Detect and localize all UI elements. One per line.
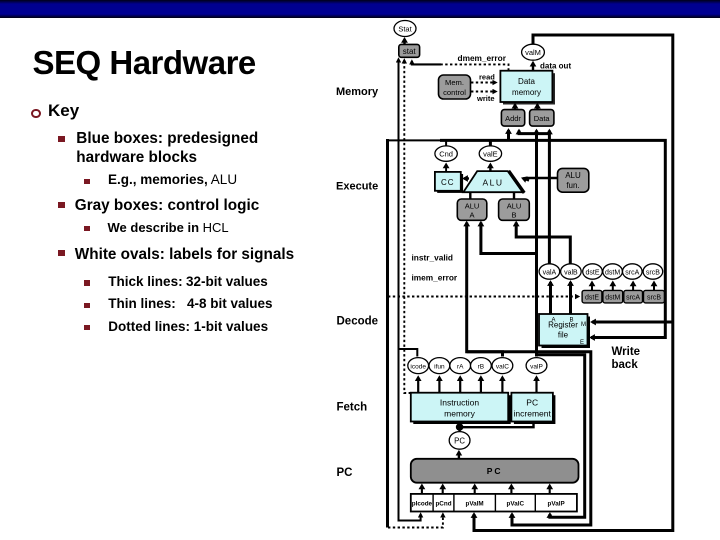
svg-text:valM: valM bbox=[525, 48, 541, 57]
svg-text:Instruction: Instruction bbox=[440, 398, 479, 408]
svg-text:dstM: dstM bbox=[605, 295, 620, 302]
svg-text:Fetch: Fetch bbox=[337, 402, 368, 414]
svg-text:rB: rB bbox=[478, 363, 485, 370]
svg-text:srcB: srcB bbox=[646, 269, 660, 276]
svg-text:valC: valC bbox=[496, 363, 509, 370]
svg-text:data out: data out bbox=[540, 62, 571, 71]
svg-text:Memory: Memory bbox=[336, 86, 379, 98]
svg-text:PC: PC bbox=[337, 467, 353, 479]
svg-text:Execute: Execute bbox=[336, 181, 378, 193]
svg-text:B: B bbox=[570, 318, 574, 324]
svg-text:Cnd: Cnd bbox=[439, 149, 453, 158]
svg-text:Addr: Addr bbox=[505, 114, 521, 123]
svg-text:pIcode: pIcode bbox=[412, 500, 433, 507]
svg-text:dstE: dstE bbox=[585, 269, 599, 276]
svg-text:E: E bbox=[580, 340, 584, 346]
svg-text:dmem_error: dmem_error bbox=[458, 53, 507, 63]
svg-text:fun.: fun. bbox=[566, 181, 579, 190]
svg-text:file: file bbox=[558, 331, 569, 340]
svg-text:write: write bbox=[476, 94, 495, 103]
svg-text:A: A bbox=[552, 318, 556, 324]
svg-text:memory: memory bbox=[512, 88, 541, 97]
svg-text:ifun: ifun bbox=[434, 363, 445, 370]
svg-text:valB: valB bbox=[564, 269, 578, 276]
svg-text:A: A bbox=[469, 210, 474, 219]
svg-text:valE: valE bbox=[483, 149, 498, 158]
svg-text:pValM: pValM bbox=[465, 500, 483, 507]
svg-text:pCnd: pCnd bbox=[435, 500, 451, 507]
svg-text:instr_valid: instr_valid bbox=[412, 253, 454, 263]
svg-text:CC: CC bbox=[441, 178, 455, 187]
svg-text:rA: rA bbox=[457, 363, 464, 370]
svg-text:ALU: ALU bbox=[565, 171, 581, 180]
svg-text:ALU: ALU bbox=[482, 177, 503, 187]
svg-text:Write: Write bbox=[612, 346, 641, 358]
svg-text:read: read bbox=[479, 73, 495, 82]
svg-text:stat: stat bbox=[403, 47, 417, 56]
svg-text:Mem.: Mem. bbox=[445, 78, 464, 87]
svg-text:ALU: ALU bbox=[507, 201, 522, 210]
svg-text:PC: PC bbox=[454, 436, 465, 445]
svg-text:ALU: ALU bbox=[465, 201, 480, 210]
svg-text:control: control bbox=[443, 88, 466, 97]
svg-text:increment: increment bbox=[514, 409, 552, 419]
svg-text:srcB: srcB bbox=[647, 295, 661, 302]
svg-text:B: B bbox=[511, 210, 516, 219]
svg-text:Data: Data bbox=[534, 114, 551, 123]
svg-text:PC: PC bbox=[526, 398, 538, 408]
svg-text:back: back bbox=[612, 359, 639, 371]
svg-text:icode: icode bbox=[410, 363, 426, 370]
svg-text:memory: memory bbox=[444, 409, 475, 419]
svg-text:imem_error: imem_error bbox=[412, 273, 458, 283]
svg-text:Decode: Decode bbox=[337, 316, 379, 328]
svg-text:Stat: Stat bbox=[398, 24, 412, 33]
svg-text:valA: valA bbox=[543, 269, 557, 276]
svg-text:srcA: srcA bbox=[626, 295, 640, 302]
svg-text:dstE: dstE bbox=[585, 295, 599, 302]
svg-text:srcA: srcA bbox=[625, 269, 639, 276]
svg-text:dstM: dstM bbox=[605, 269, 620, 276]
svg-text:valP: valP bbox=[530, 363, 543, 370]
svg-text:pValC: pValC bbox=[507, 500, 525, 507]
svg-text:Data: Data bbox=[518, 77, 535, 86]
svg-text:M: M bbox=[581, 322, 586, 328]
svg-text:PC: PC bbox=[487, 466, 503, 476]
svg-text:pValP: pValP bbox=[548, 500, 565, 507]
